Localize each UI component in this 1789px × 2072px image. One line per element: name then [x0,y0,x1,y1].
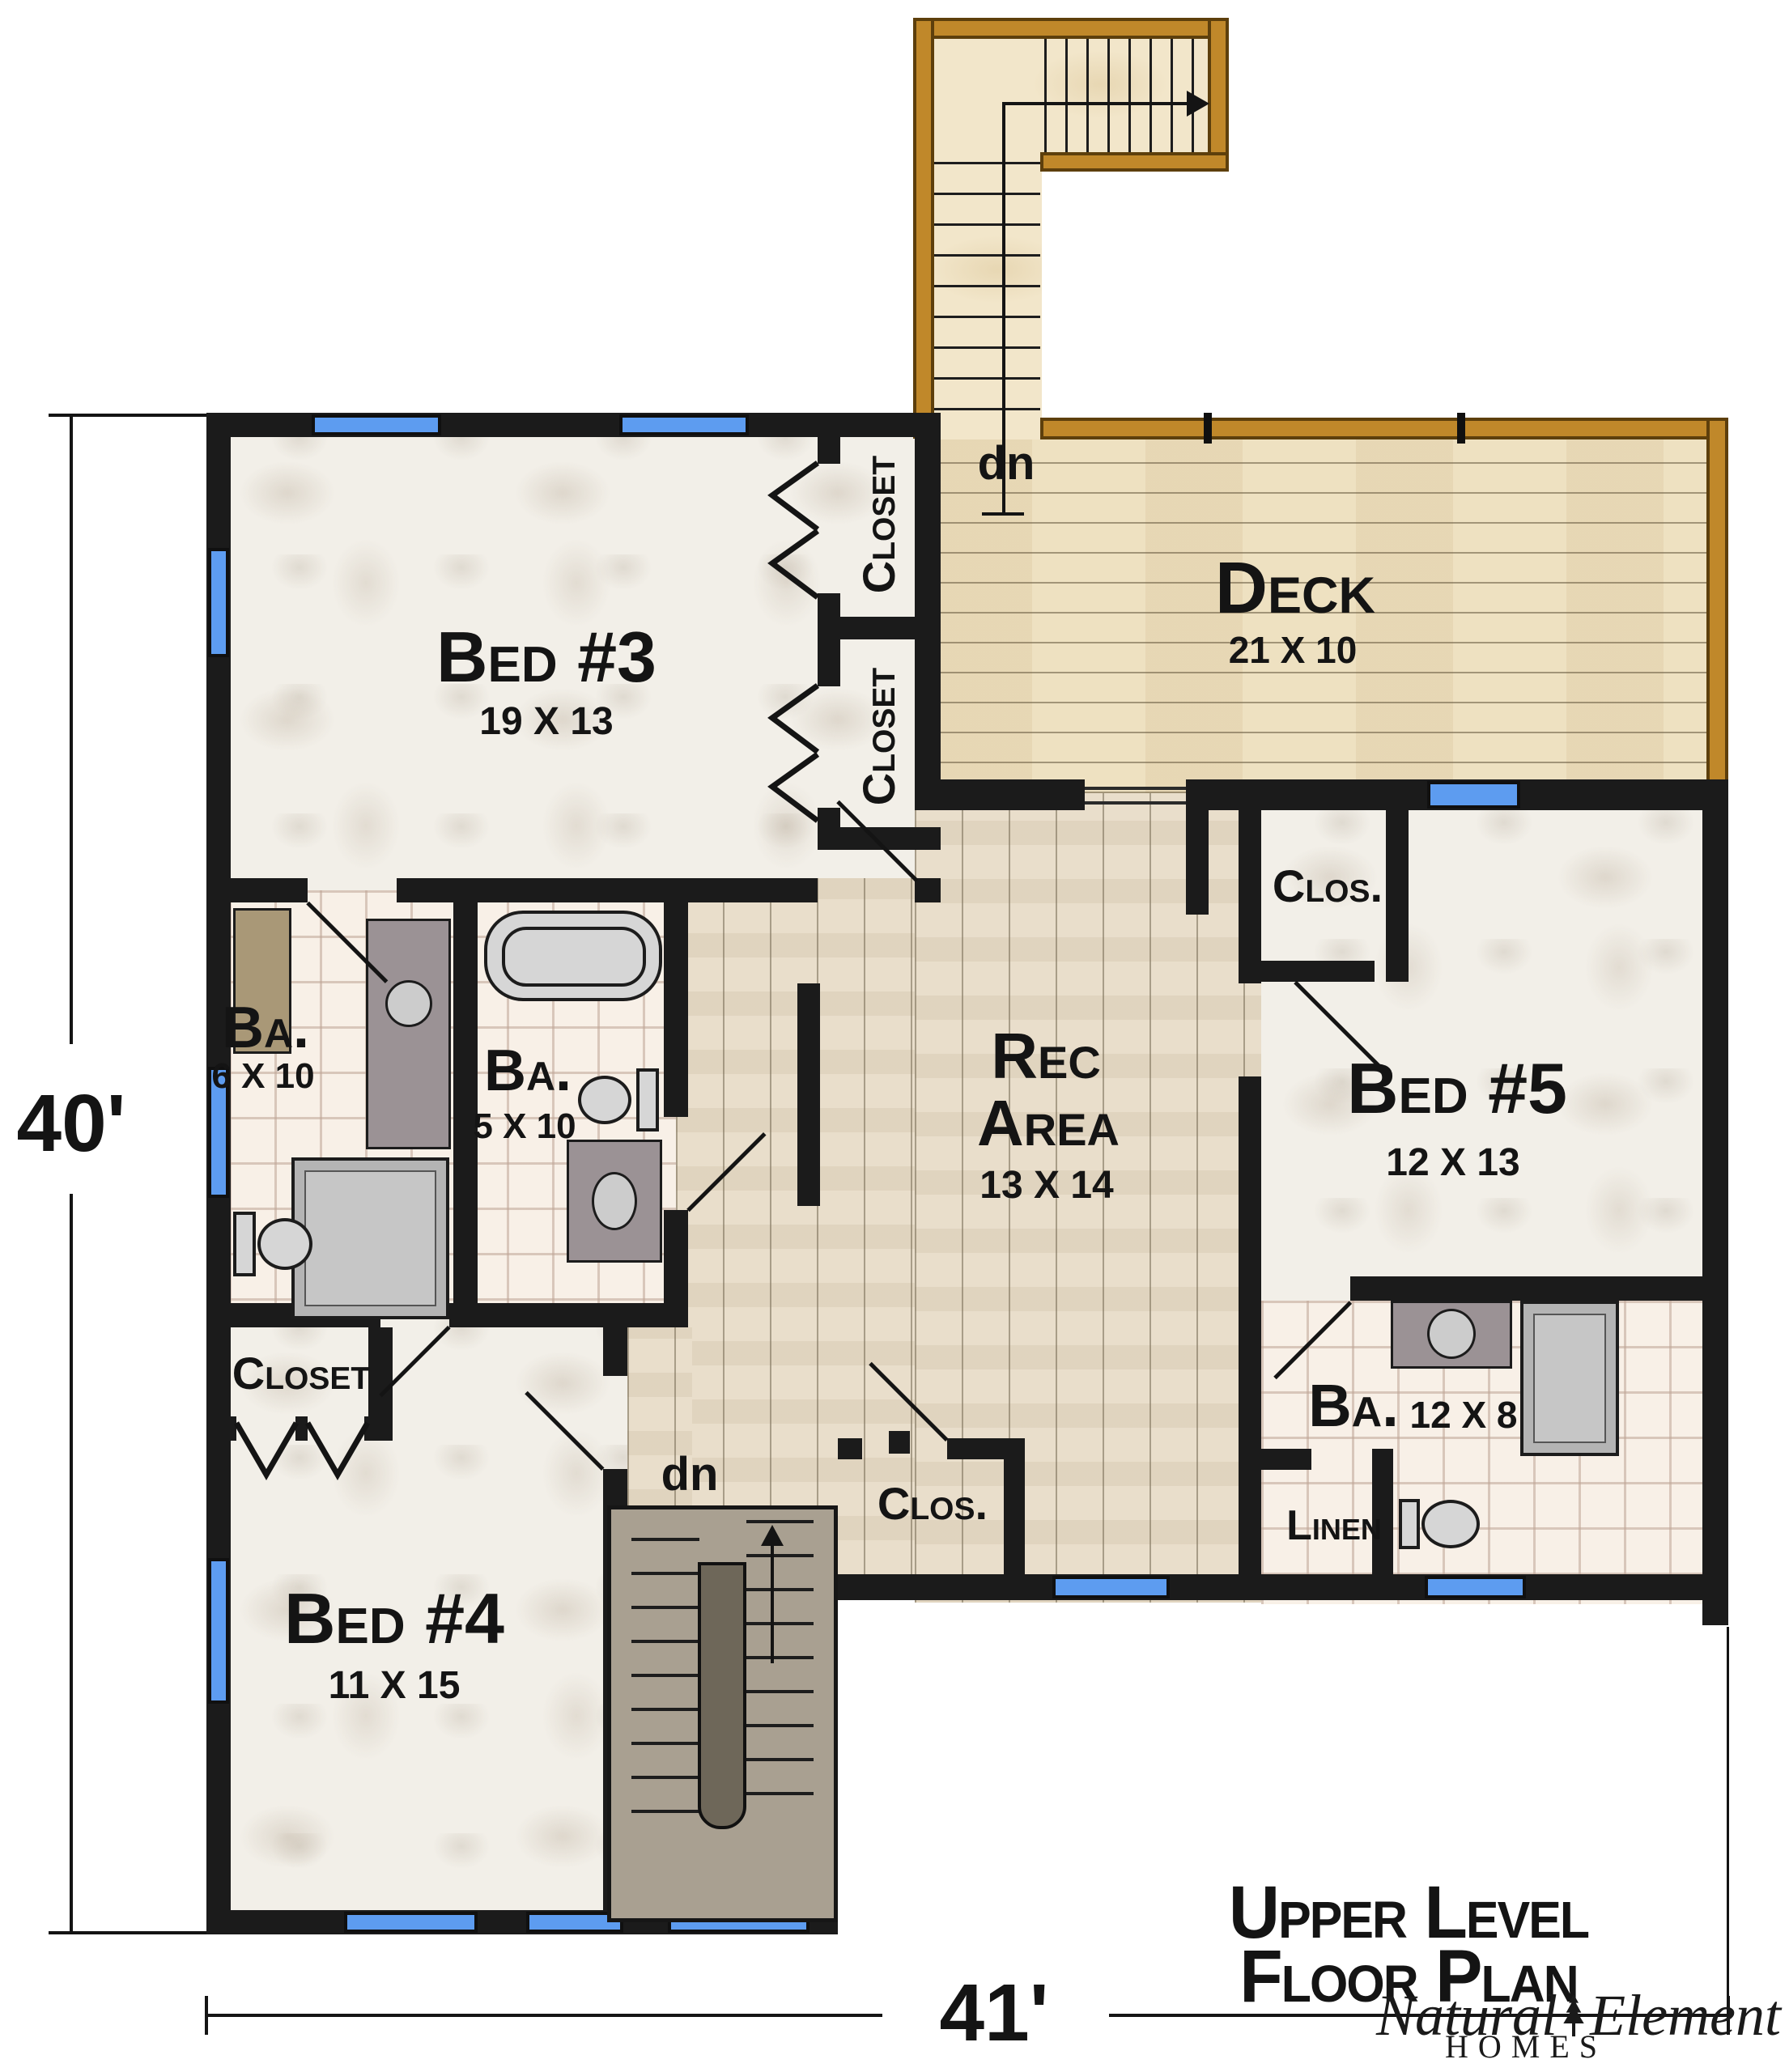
wall-bath-bottom-b [449,1303,688,1327]
deck-rail-post [1457,413,1465,444]
bath1-sink [385,980,432,1027]
stair-flight-right-treads [746,1520,814,1821]
dim-line-bottom-left [206,2014,882,2017]
bath3-toilet-tank [1399,1499,1420,1549]
window-bed5-top [1427,781,1520,809]
wall-right [1702,779,1728,1625]
stair-down-label-interior: dn [661,1451,719,1498]
wall-linen-left [1239,1301,1261,1576]
bath1-shower [291,1157,449,1319]
bed4-size: 11 X 15 [329,1667,461,1705]
bifold-icon-closet-upper-2 [766,528,822,601]
window-left-bed4 [208,1558,229,1704]
deck-label: Deck [1215,552,1375,625]
stair-arrow-horizontal [1002,102,1190,105]
bath2-label: Ba. [484,1042,572,1100]
wall-rec-halfwall [797,983,820,1206]
wall-deckdoor-jamb [1186,809,1209,915]
wall-bath2-right-a [664,878,688,1117]
dim-tick-bottom-left [205,1996,208,2035]
closet-upper-label: Closet [856,456,902,593]
closet-bed5-label: Clos. [1273,864,1383,909]
rec-area-size: 13 X 14 [979,1166,1113,1205]
stair-center-stringer [698,1562,746,1829]
bath2-size: 5 X 10 [473,1109,576,1144]
dim-label-40ft: 40' [16,1083,125,1164]
dim-line-left-lower [70,1194,73,1934]
bifold-icon-bed4-closet-1 [233,1418,300,1484]
wall-bath-divider [453,878,478,1327]
bath1-size: 6 X 10 [211,1059,314,1094]
closet-bed4-label: Closet [232,1351,370,1396]
brand-word: HOMES [1445,2027,1607,2066]
deck-size: 21 X 10 [1229,631,1358,669]
wall-bed4-closet-bottom-a [206,1416,236,1441]
stair-flight-left-treads [631,1538,699,1821]
closet-lower-label: Closet [856,668,902,805]
wall-rightwing-top-a [915,779,1085,810]
wall-bed3-bottom-a [206,878,308,902]
bath3-shower [1520,1301,1619,1456]
closet-rec-label: Clos. [878,1481,988,1526]
bath2-toilet-tank [636,1068,659,1132]
wall-bath3-top [1350,1276,1704,1301]
exterior-stair-treads-horizontal [1044,39,1208,152]
exterior-stair-treads-vertical [934,162,1040,434]
window-bath3-bottom [1425,1576,1526,1599]
wall-bed4-right-a [603,1303,627,1376]
bath1-vanity [366,919,451,1149]
wall-rightwing-bottom [838,1574,1728,1600]
bed5-label: Bed #5 [1347,1053,1567,1124]
dim-ext-bottom-left [49,1931,206,1934]
wall-bed5-divider [1239,1076,1261,1301]
bed5-size: 12 X 13 [1386,1144,1519,1182]
wall-recclos-right [1004,1438,1025,1574]
deck-rail-post [1204,413,1212,444]
stair-railing-right [1208,18,1229,159]
window-left-bed3 [208,548,229,657]
interior-stair-arrow-head-icon [761,1525,784,1546]
window-bottom-1 [344,1912,478,1933]
brand-script-right: Element [1590,1982,1781,2049]
bifold-icon-closet-lower-2 [766,751,822,824]
bed3-label: Bed #3 [436,622,657,693]
wall-closet-strip-right [915,413,941,795]
wall-linen-top [1261,1449,1311,1470]
deck-railing-top [1040,418,1728,439]
bath2-toilet-bowl [578,1076,631,1124]
stair-railing-top [913,18,1229,39]
bath3-size: 12 X 8 [1410,1396,1518,1433]
bath3-label: Ba. [1308,1376,1399,1436]
floor-plan-page: 40' 41' Bed #3 19 X 13 Bed #4 11 X 15 Be… [0,0,1789,2072]
bath1-toilet-bowl [257,1218,312,1270]
window-recarea-bottom [1052,1576,1170,1599]
rec-area-label-2: Area [977,1091,1120,1156]
bath2-sink [592,1172,637,1230]
wall-bed5clos-bottom [1261,961,1375,982]
dim-label-41ft: 41' [939,1972,1048,2053]
stair-railing-inner [1040,152,1229,172]
bed3-size: 19 X 13 [479,703,613,741]
wall-bed3-bottom-stub [915,878,941,902]
stair-arrow-head-icon [1187,91,1209,117]
interior-stair-arrow-line [771,1546,774,1663]
window-top-2 [619,414,749,435]
bath2-tub-basin [502,927,646,987]
wall-bed5clos-left [1239,809,1261,983]
bath3-sink [1427,1309,1476,1359]
dim-ext-top-left [49,414,206,417]
dim-line-left-upper [70,414,73,1044]
wall-bed5clos-right [1386,809,1409,982]
rec-area-label-1: Rec [991,1024,1101,1089]
bifold-icon-closet-lower-1 [766,682,822,755]
bifold-icon-bed4-closet-2 [304,1418,371,1484]
bath3-toilet-bowl [1421,1500,1480,1548]
stair-down-label-deck: dn [978,440,1035,487]
wall-recclos-stop [889,1431,910,1454]
stair-railing-left [913,18,934,439]
bath2-tub [484,911,662,1001]
wall-closets-left-a [818,425,840,464]
bed4-label: Bed #4 [284,1583,504,1654]
wall-recclos-top-a [838,1438,862,1459]
deck-door-threshold [1085,787,1186,805]
bifold-icon-closet-upper-1 [766,460,822,533]
bath1-toilet-tank [233,1212,256,1276]
wall-closets-left-c [818,639,840,686]
window-top-1 [312,414,441,435]
wall-closets-divider [818,617,941,639]
bath1-label: Ba. [222,999,309,1057]
linen-label: Linen [1286,1505,1382,1547]
deck-railing-right [1706,418,1728,794]
